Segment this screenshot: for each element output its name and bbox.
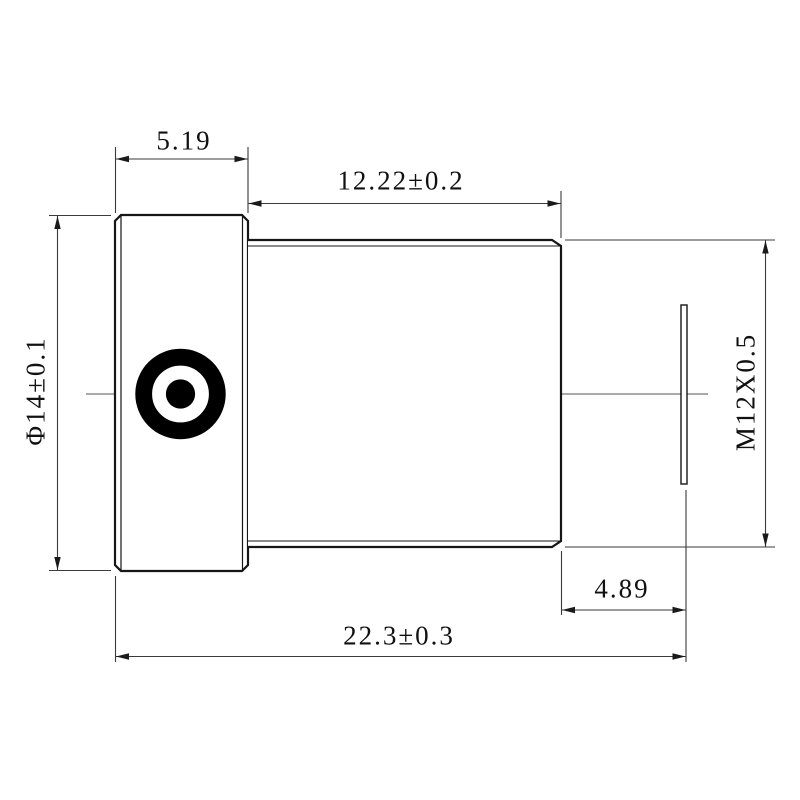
arrow-flange-diameter-bottom	[54, 557, 60, 570]
thread-barrel-outline	[248, 240, 561, 547]
dim-label-total-length: 22.3±0.3	[343, 623, 455, 650]
arrow-thread-length-right	[548, 200, 561, 206]
arrow-total-length-right	[673, 653, 686, 659]
arrow-thread-length-left	[249, 200, 262, 206]
arrow-flange-diameter-top	[54, 216, 60, 229]
dim-label-back-distance: 4.89	[594, 576, 649, 603]
dim-label-thread-spec: M12X0.5	[733, 333, 760, 451]
dim-label-flange-width: 5.19	[156, 128, 211, 155]
arrow-thread-spec-bottom	[762, 534, 768, 547]
arrow-flange-width-left	[116, 156, 129, 162]
arrow-back-distance-left	[562, 607, 575, 613]
arrow-total-length-left	[116, 653, 129, 659]
arrow-thread-spec-top	[762, 241, 768, 254]
arrow-flange-width-right	[235, 156, 248, 162]
technical-drawing-page: 5.19 12.22±0.2 Φ14±0.1 M12X0.5 4.89 22.3…	[0, 0, 800, 800]
lens-aperture-dot	[166, 379, 195, 408]
image-plane-bar	[681, 305, 687, 484]
arrow-back-distance-right	[673, 607, 686, 613]
dim-label-flange-diameter: Φ14±0.1	[23, 336, 50, 445]
drawing-canvas	[0, 0, 800, 800]
dim-label-thread-length: 12.22±0.2	[337, 168, 464, 195]
